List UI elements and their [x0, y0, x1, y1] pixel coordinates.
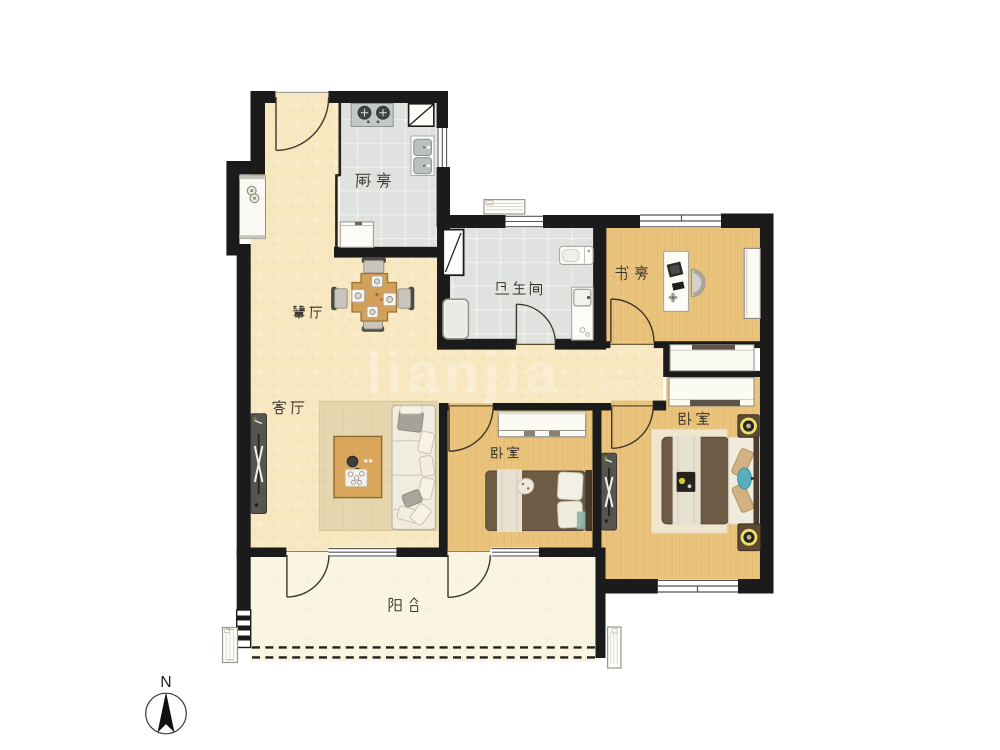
svg-text:lianjia: lianjia	[366, 341, 563, 405]
svg-text:.com: .com	[599, 375, 634, 392]
svg-text:N: N	[160, 674, 171, 691]
